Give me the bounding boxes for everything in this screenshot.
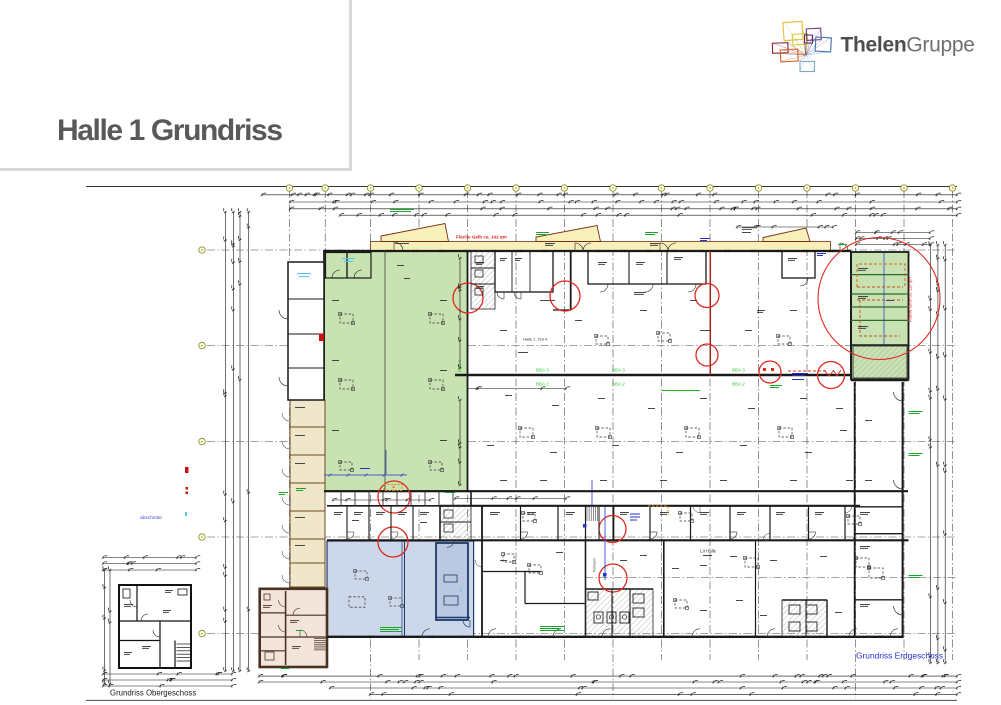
svg-text:BBA 3: BBA 3 <box>732 368 745 373</box>
svg-text:BBA 2: BBA 2 <box>732 382 745 387</box>
svg-text:BBA 3: BBA 3 <box>612 368 625 373</box>
svg-text:BBA 3: BBA 3 <box>536 368 549 373</box>
svg-text:Grundriss Erdgeschoss: Grundriss Erdgeschoss <box>856 651 943 661</box>
svg-text:abschnitte: abschnitte <box>140 515 162 521</box>
svg-text:BBA 2: BBA 2 <box>536 382 549 387</box>
svg-text:LII Halle: LII Halle <box>700 549 717 554</box>
svg-text:B2: B2 <box>458 586 463 592</box>
svg-text:Halle 1, Teil 4: Halle 1, Teil 4 <box>523 337 548 342</box>
svg-text:Fläche Grün ca. 115 qm: Fläche Grün ca. 115 qm <box>908 277 913 322</box>
svg-text:BBA 1: BBA 1 <box>457 359 462 372</box>
svg-text:Füllraum: Füllraum <box>593 558 597 572</box>
svg-text:BBA 2: BBA 2 <box>612 382 625 387</box>
svg-text:Grundriss Obergeschoss: Grundriss Obergeschoss <box>110 689 196 698</box>
svg-text:Fläche Gelb ca. 142 qm: Fläche Gelb ca. 142 qm <box>456 235 507 240</box>
svg-text:ThelenGruppe: ThelenGruppe <box>841 34 975 57</box>
